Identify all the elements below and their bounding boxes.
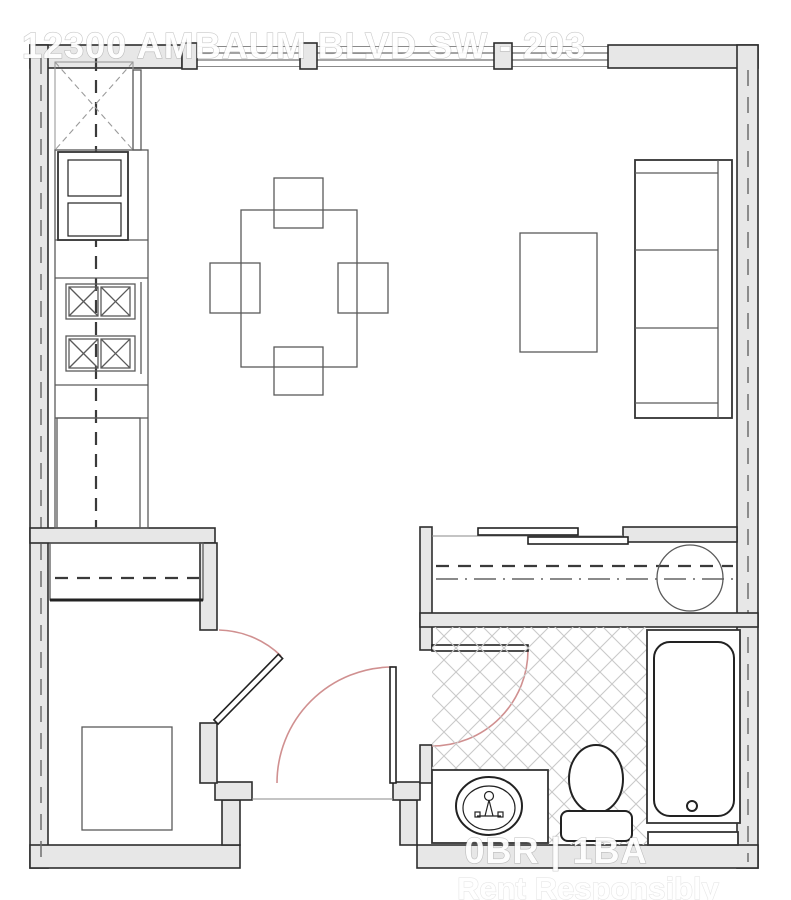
dining-chair	[274, 347, 323, 395]
entry-step-right	[400, 800, 417, 845]
tagline-watermark: Rent Responsibly	[457, 871, 720, 900]
wall-left	[30, 45, 48, 868]
tile-floor-hatch	[432, 627, 648, 770]
address-watermark: 12300 AMBAUM BLVD SW - 203	[22, 25, 586, 66]
dining-chair	[338, 263, 388, 313]
unit-specs-watermark: 0BR | 1BA	[464, 830, 647, 872]
entry-step-left	[222, 800, 240, 845]
living-room	[520, 160, 732, 418]
entry-door	[252, 667, 396, 799]
base-cabinet	[57, 418, 140, 528]
dining-chair	[274, 178, 323, 228]
bedroom-closet	[50, 543, 203, 600]
refrigerator	[55, 62, 141, 150]
bath-wall-lower	[420, 745, 432, 783]
floor-plan: 12300 AMBAUM BLVD SW - 203 0BR | 1BA Ren…	[0, 0, 791, 900]
tub-shelf	[648, 832, 738, 845]
bedroom-area	[50, 543, 203, 830]
bedroom-door	[214, 630, 283, 724]
double-sink	[58, 152, 128, 240]
dining-table	[241, 210, 357, 367]
bathroom	[432, 627, 740, 845]
bathtub	[647, 630, 740, 823]
wall-bottom-left	[30, 845, 240, 868]
kitchen-closet-divider	[30, 528, 215, 543]
dining-chair	[210, 263, 260, 313]
dining-set	[210, 178, 388, 395]
sliding-door-panel	[528, 537, 628, 544]
bedroom-wall-lower	[200, 723, 217, 783]
entry-header-left	[215, 782, 252, 800]
closet-bath-divider	[420, 613, 758, 627]
entry-header-right	[393, 782, 420, 800]
wall-top-right	[608, 45, 758, 68]
floor-plan-page: 12300 AMBAUM BLVD SW - 203 0BR | 1BA Ren…	[0, 0, 791, 900]
range-burners	[66, 282, 141, 374]
tub-drain	[687, 801, 697, 811]
sliding-door-panel	[478, 528, 578, 535]
bath-wall-upper	[420, 527, 432, 650]
coffee-table	[520, 233, 597, 352]
bedroom-furniture	[82, 727, 172, 830]
kitchen	[55, 58, 148, 528]
closet-header-wall	[623, 527, 737, 542]
sofa	[635, 160, 732, 418]
water-heater	[657, 545, 723, 611]
